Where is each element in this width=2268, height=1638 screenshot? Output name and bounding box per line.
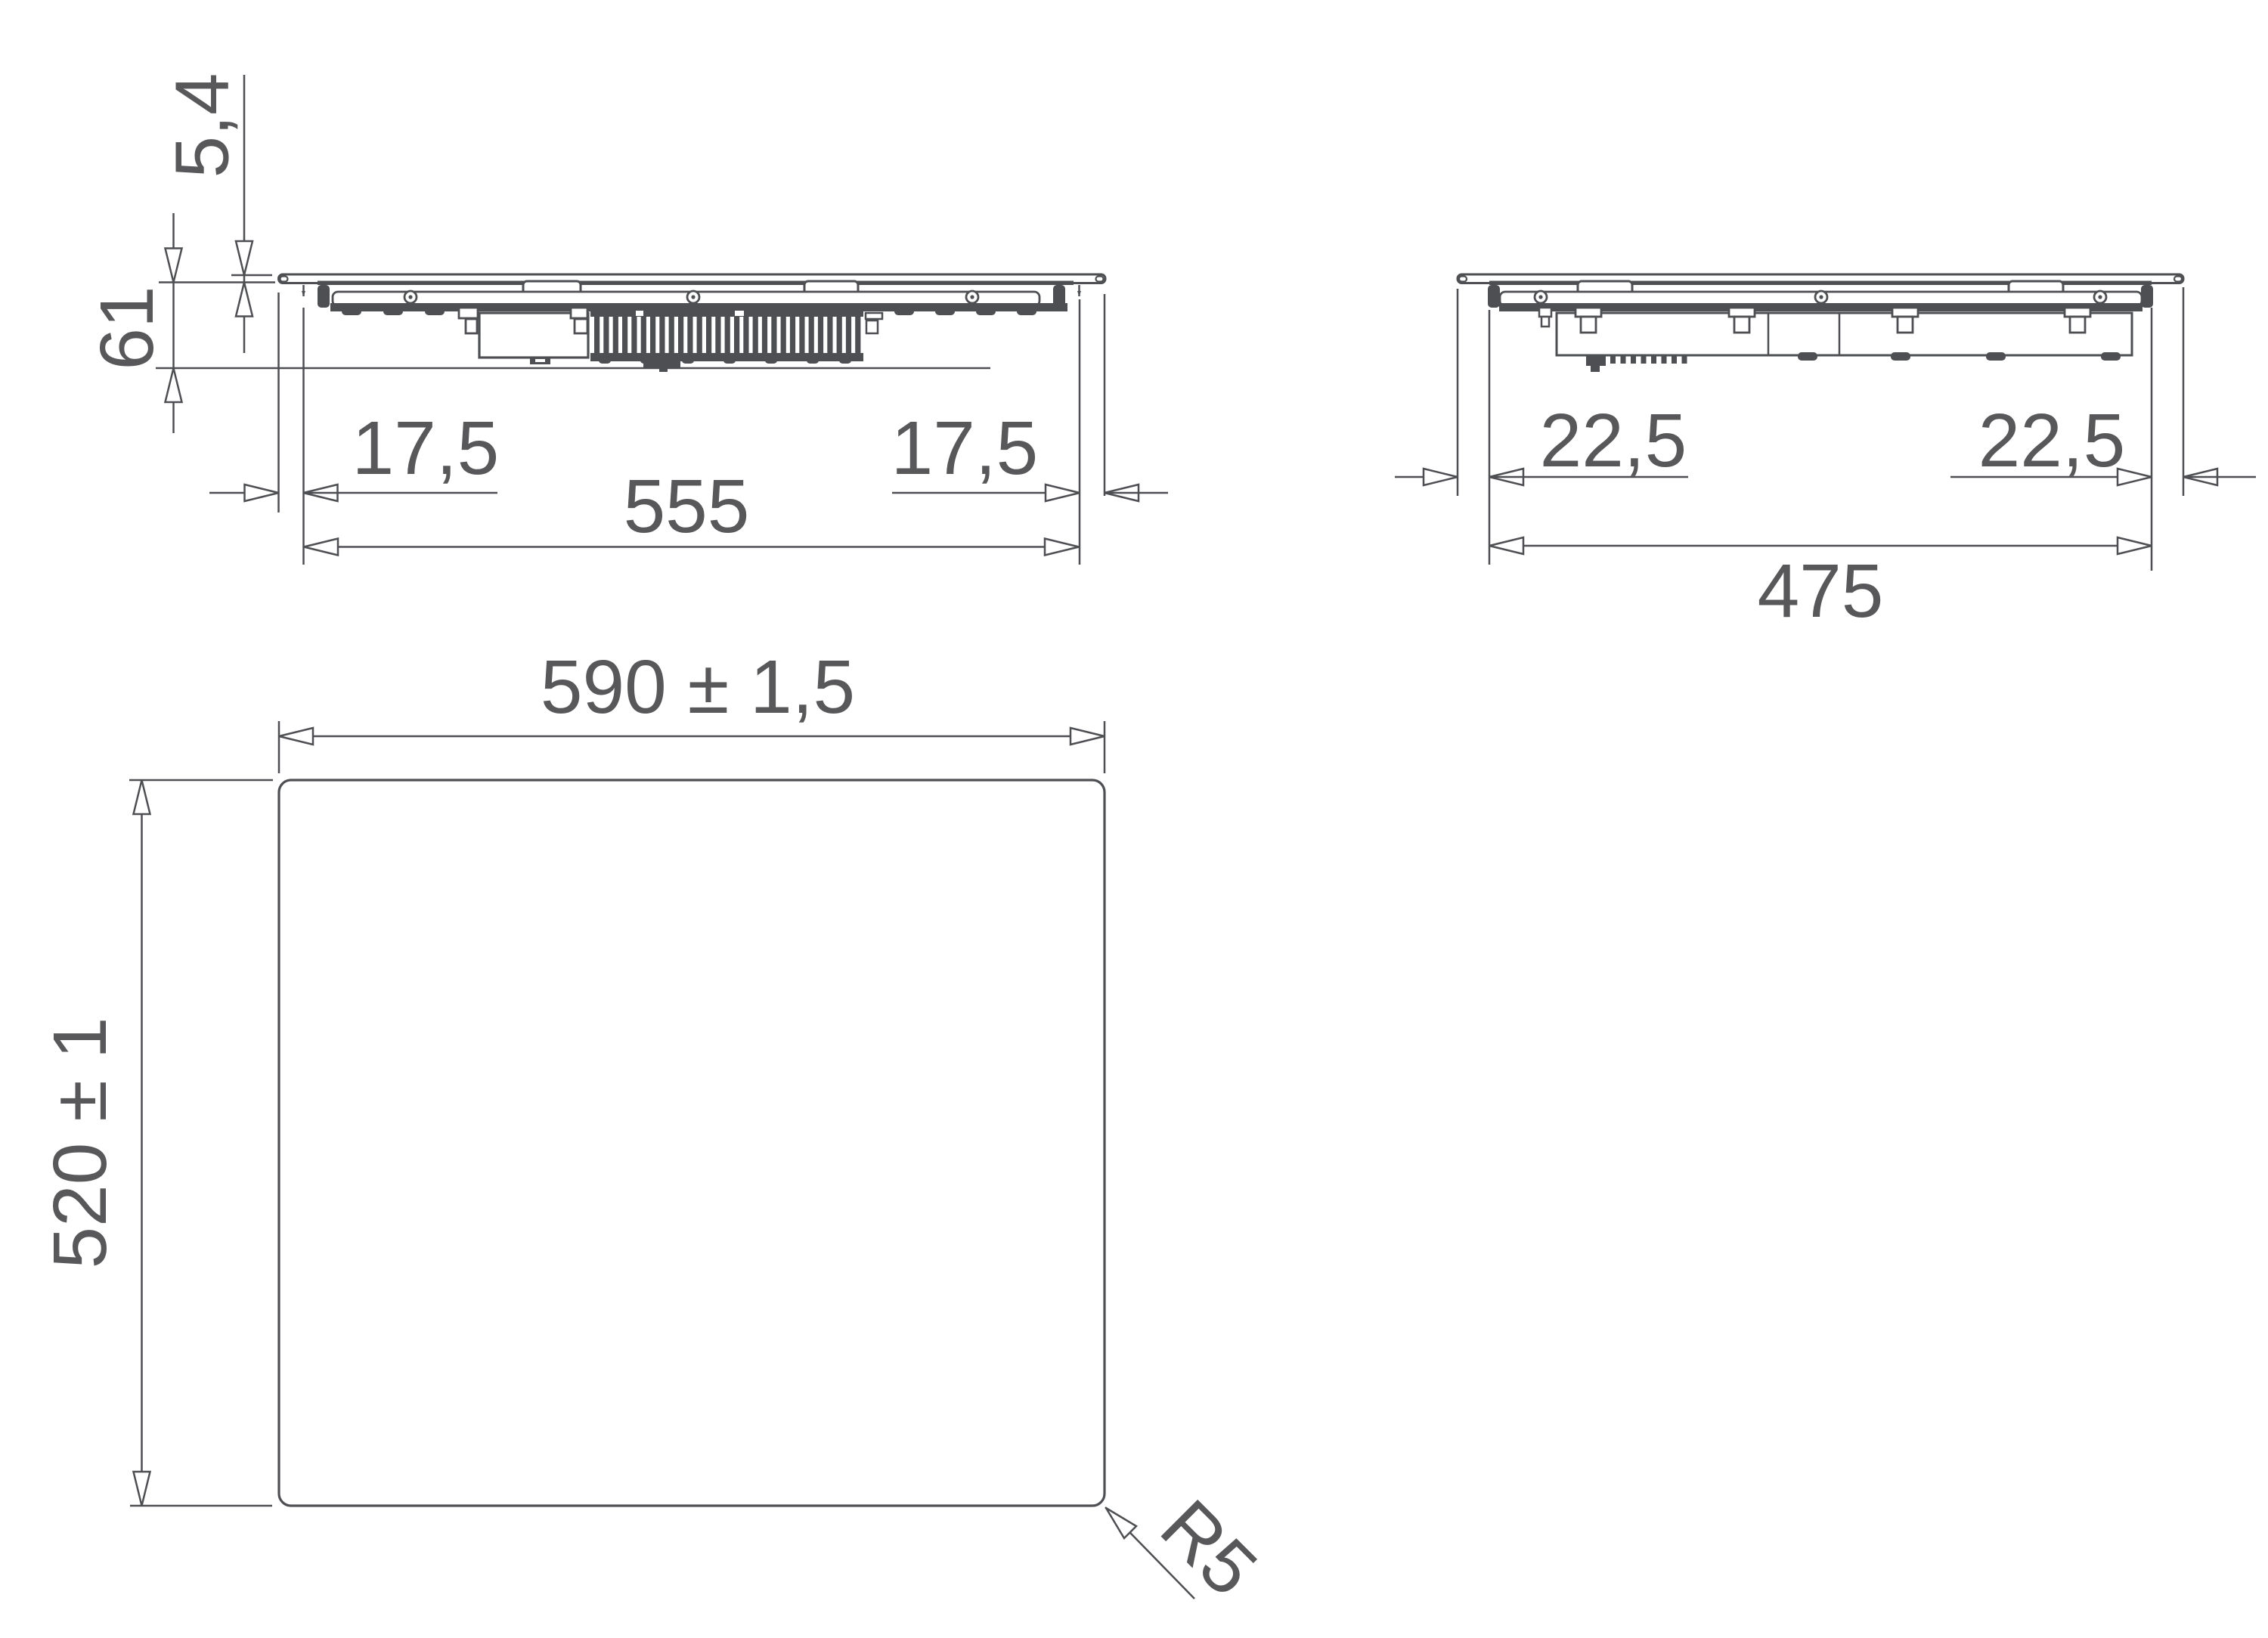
svg-text:22,5: 22,5 — [1978, 398, 2126, 483]
svg-text:17,5: 17,5 — [891, 406, 1039, 491]
svg-text:590 ± 1,5: 590 ± 1,5 — [541, 645, 855, 729]
svg-text:5,4: 5,4 — [160, 73, 245, 178]
svg-text:475: 475 — [1758, 549, 1884, 633]
svg-text:61: 61 — [85, 286, 169, 370]
svg-text:22,5: 22,5 — [1540, 398, 1687, 483]
svg-text:17,5: 17,5 — [352, 406, 500, 491]
svg-text:555: 555 — [624, 464, 750, 549]
svg-text:520 ± 1: 520 ± 1 — [38, 1017, 122, 1269]
